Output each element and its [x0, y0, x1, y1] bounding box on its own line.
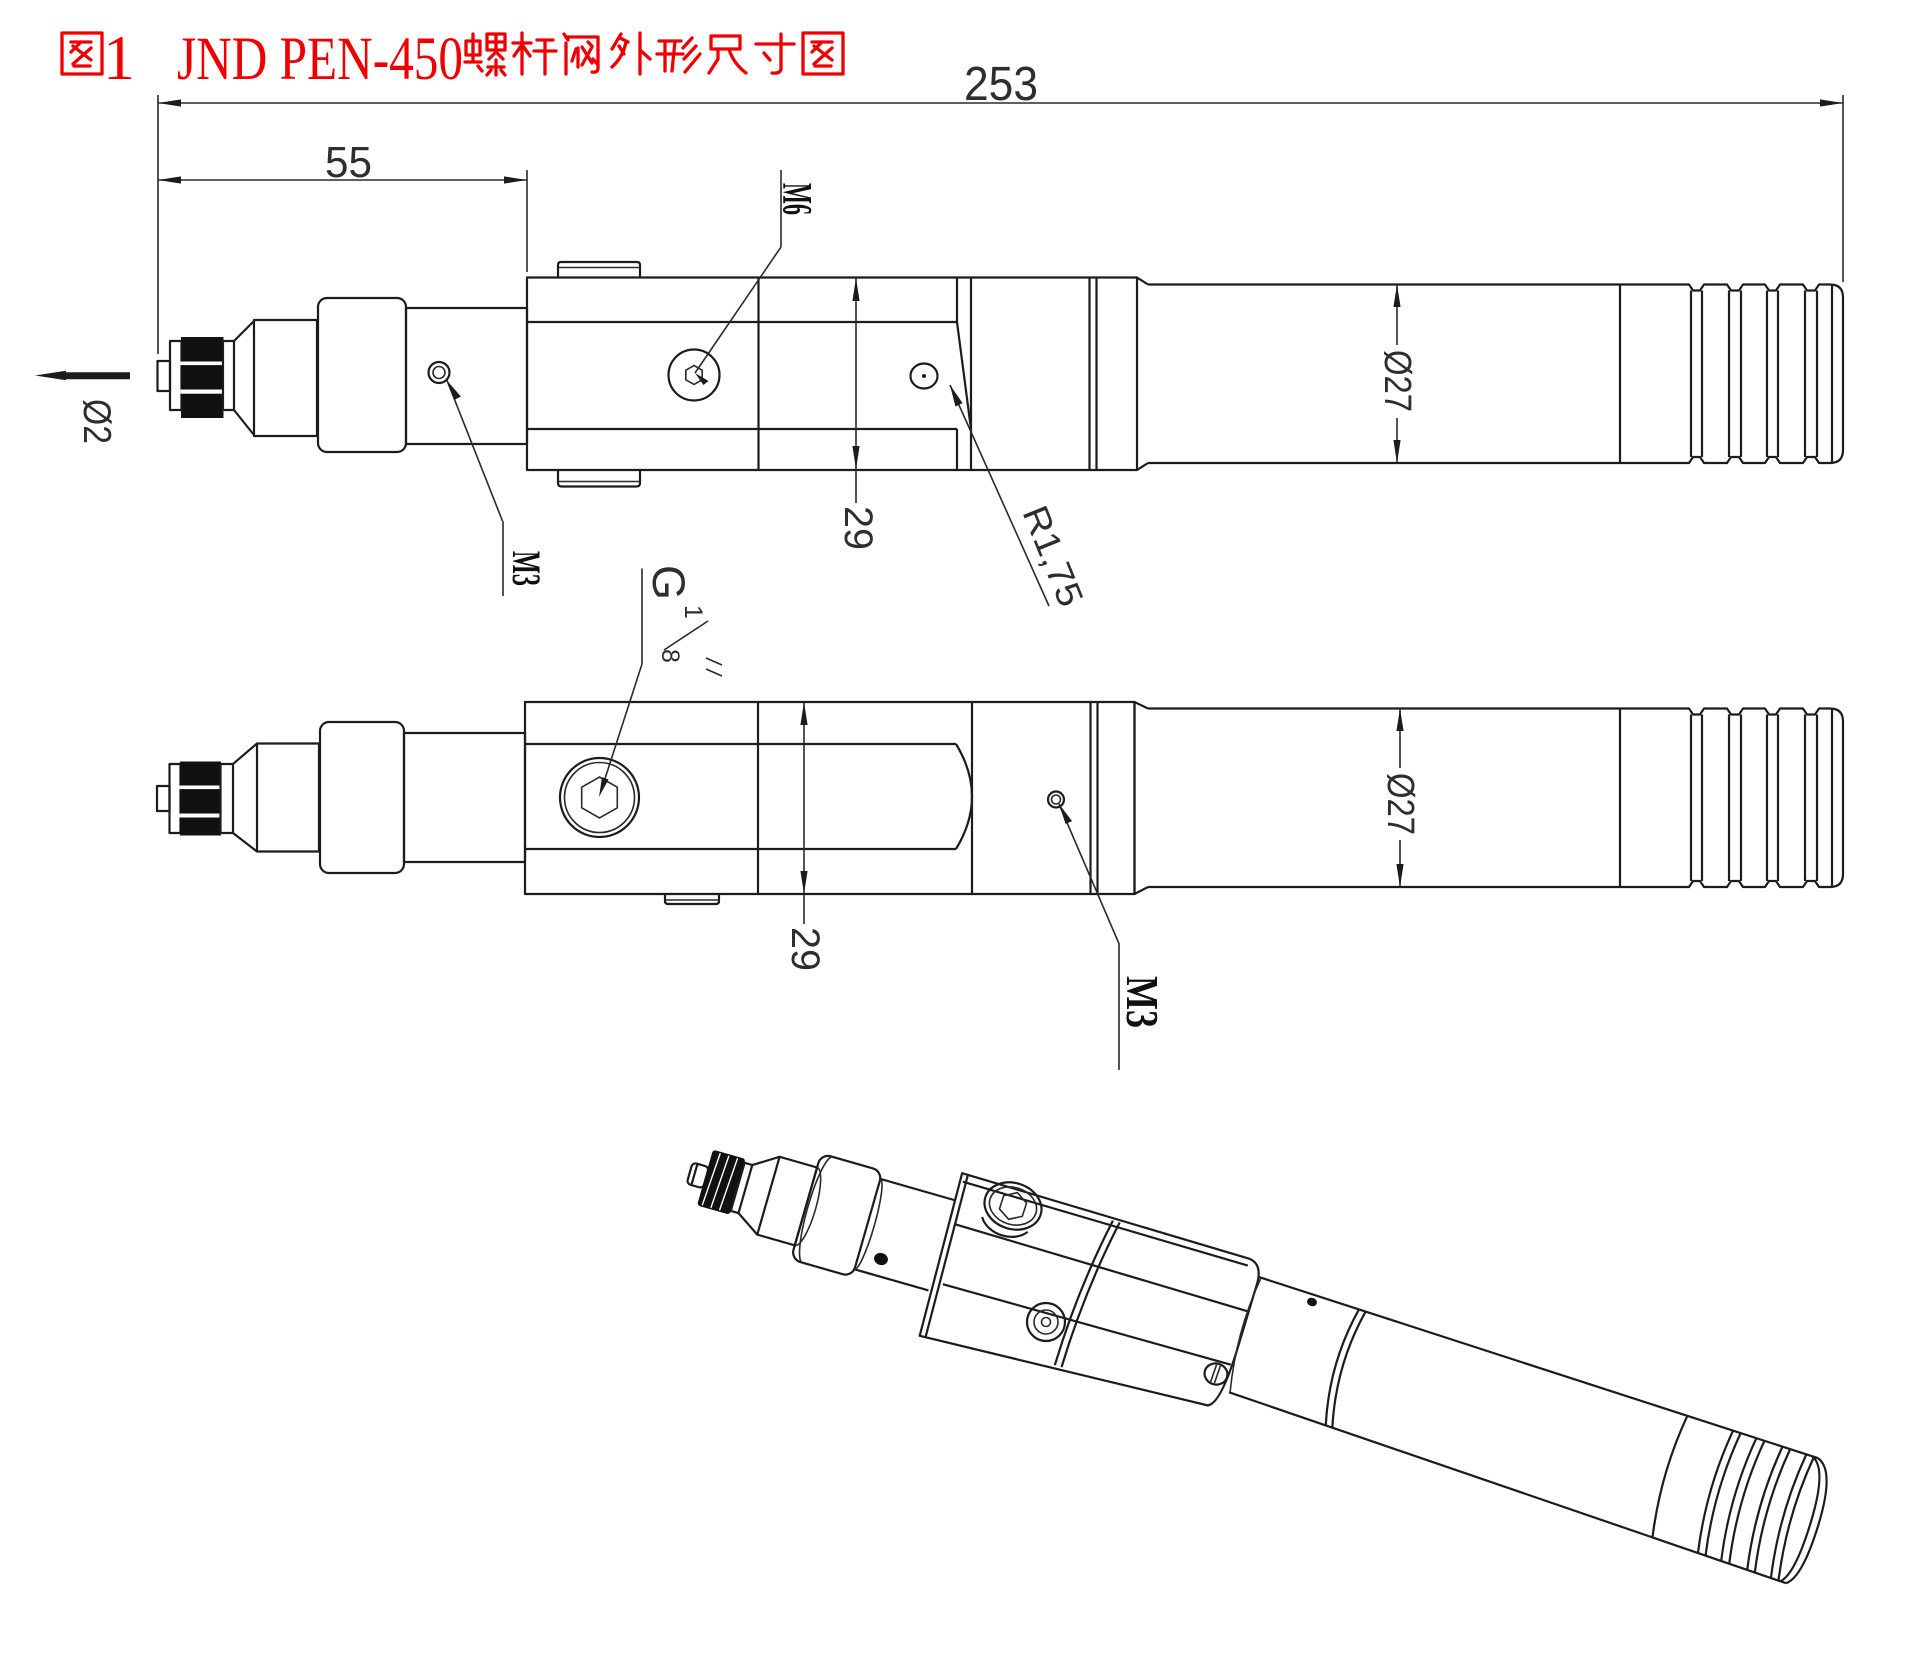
svg-text:29: 29 — [836, 506, 880, 550]
svg-text:1: 1 — [103, 22, 135, 93]
svg-text:8: 8 — [656, 649, 684, 663]
svg-text:253: 253 — [964, 58, 1038, 111]
svg-text:Ø2: Ø2 — [75, 399, 118, 444]
svg-text:M3: M3 — [1117, 976, 1168, 1028]
svg-text:29: 29 — [783, 927, 827, 971]
svg-text:1: 1 — [679, 605, 707, 619]
svg-text:Ø27: Ø27 — [1376, 350, 1418, 412]
svg-text:Ø27: Ø27 — [1379, 773, 1421, 835]
svg-text:M3: M3 — [504, 551, 549, 586]
svg-text:55: 55 — [325, 138, 372, 187]
svg-text:G: G — [643, 565, 694, 600]
svg-text:JND PEN-450: JND PEN-450 — [177, 26, 463, 93]
svg-text:M6: M6 — [773, 183, 819, 215]
